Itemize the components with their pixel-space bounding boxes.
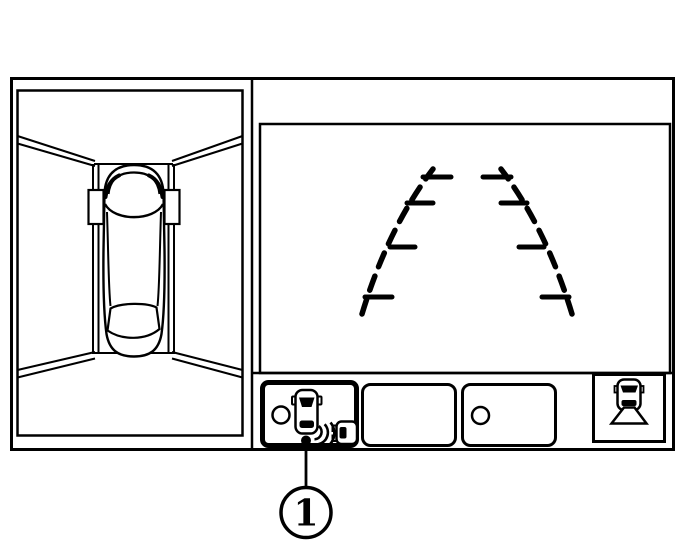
camera-view-switch-button[interactable] [594, 375, 665, 442]
toolbar-button-2[interactable] [363, 385, 456, 446]
top-view-car-icon [103, 165, 164, 357]
cross-traffic-vehicle-icon [333, 422, 358, 445]
figure-canvas: 1 [0, 0, 685, 555]
camera-view-switch-icon [612, 380, 647, 424]
callout-number: 1 [293, 493, 318, 535]
mirror-marker-right [165, 190, 180, 224]
sonar-cross-traffic-button[interactable] [263, 383, 358, 452]
callout-1: 1 [281, 441, 331, 538]
mirror-marker-left [89, 190, 104, 224]
toolbar-button-3[interactable] [463, 385, 556, 446]
car-rear-window [108, 304, 160, 338]
sonar-car-icon [292, 390, 322, 434]
